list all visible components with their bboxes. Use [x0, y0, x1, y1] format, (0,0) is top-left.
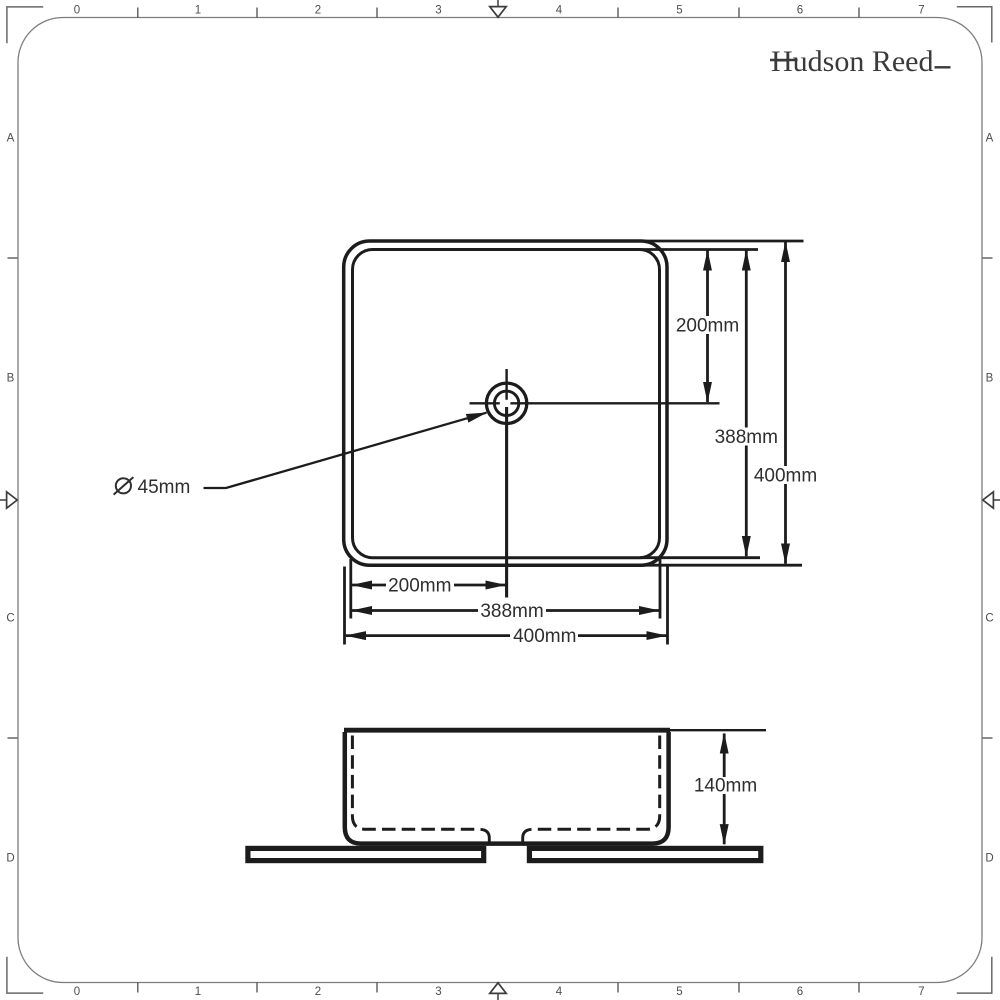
svg-text:7: 7 [918, 5, 924, 17]
svg-text:400mm: 400mm [754, 466, 817, 487]
svg-text:B: B [7, 373, 15, 385]
svg-text:C: C [985, 613, 993, 625]
svg-text:A: A [986, 133, 994, 145]
svg-text:B: B [986, 373, 994, 385]
svg-text:2: 2 [315, 5, 321, 17]
svg-text:200mm: 200mm [388, 576, 451, 597]
svg-text:D: D [985, 853, 993, 865]
svg-text:C: C [6, 613, 14, 625]
svg-text:D: D [6, 853, 14, 865]
svg-text:200mm: 200mm [676, 316, 739, 337]
svg-text:388mm: 388mm [715, 427, 778, 448]
svg-text:0: 0 [74, 5, 80, 17]
svg-text:0: 0 [74, 986, 80, 998]
svg-text:45mm: 45mm [138, 477, 191, 498]
svg-text:3: 3 [435, 5, 441, 17]
svg-text:3: 3 [435, 986, 441, 998]
svg-text:1: 1 [195, 986, 201, 998]
svg-text:388mm: 388mm [480, 601, 543, 622]
svg-text:7: 7 [918, 986, 924, 998]
svg-text:A: A [7, 133, 15, 145]
svg-text:5: 5 [676, 5, 682, 17]
svg-text:400mm: 400mm [513, 626, 576, 647]
svg-text:1: 1 [195, 5, 201, 17]
svg-text:4: 4 [556, 5, 563, 17]
svg-text:4: 4 [556, 986, 563, 998]
svg-text:5: 5 [676, 986, 682, 998]
svg-text:6: 6 [797, 5, 803, 17]
svg-text:140mm: 140mm [694, 776, 757, 797]
svg-text:2: 2 [315, 986, 321, 998]
svg-text:Hudson Reed: Hudson Reed [771, 45, 933, 78]
svg-text:6: 6 [797, 986, 803, 998]
